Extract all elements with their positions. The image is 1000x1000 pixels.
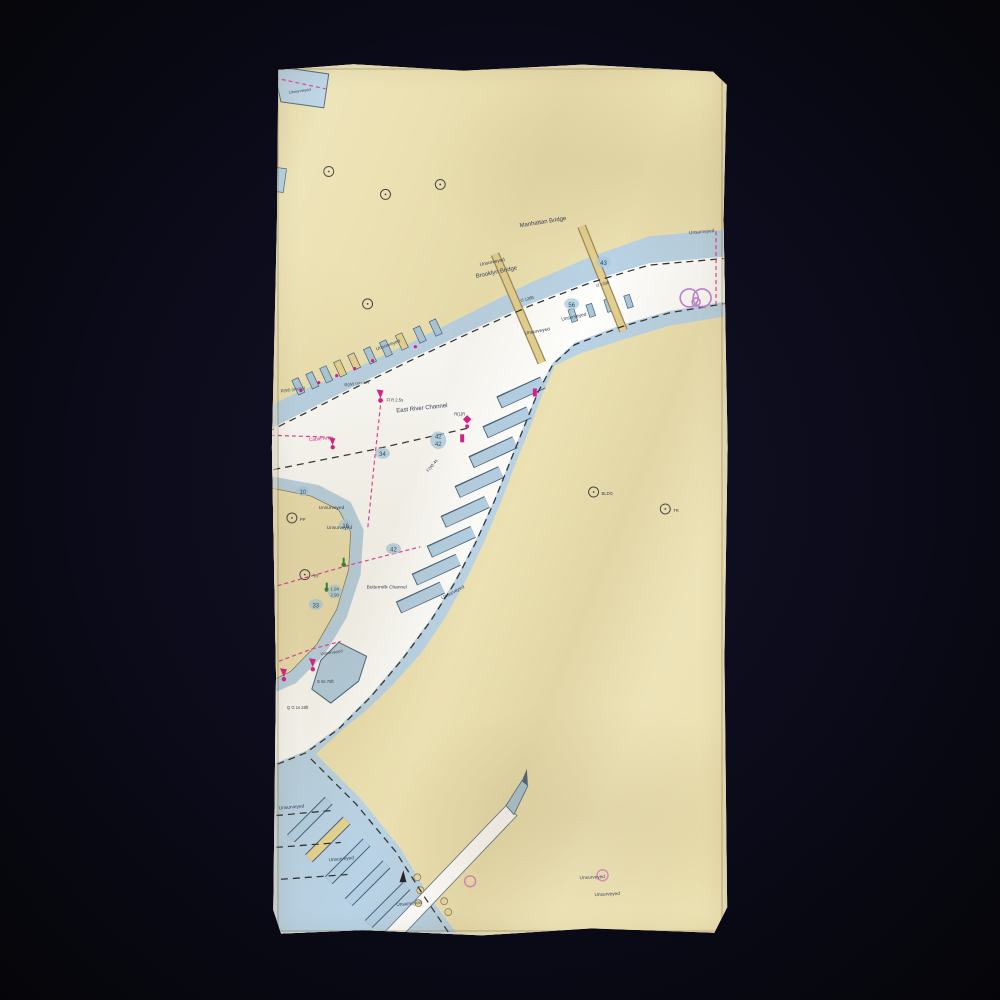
depth-value: 34 bbox=[379, 452, 386, 458]
unsurveyed-label: Unsurveyed bbox=[319, 505, 345, 511]
depth-value: 1.94 bbox=[330, 587, 339, 592]
depth-value: 43 bbox=[600, 261, 607, 267]
building-label: BLDG bbox=[602, 491, 613, 496]
light-label: Fl R 2.5s bbox=[386, 397, 403, 402]
depth-value: 33 bbox=[312, 604, 319, 610]
light-label: G 6s 76ft bbox=[317, 679, 335, 684]
depth-value: 2.90 bbox=[330, 593, 339, 598]
depth-value: 42 bbox=[435, 434, 442, 440]
buttermilk-channel-label: Buttermilk Channel bbox=[367, 585, 407, 591]
corner-chart-fragment: Unsurveyed bbox=[273, 66, 329, 108]
depth-value: 42 bbox=[390, 548, 397, 554]
unsurveyed-label: Unsurveyed bbox=[327, 525, 353, 531]
pile-label: PP bbox=[300, 517, 306, 522]
tower-label: TR bbox=[313, 574, 319, 579]
beach-towel: Unsurveyed bbox=[271, 62, 729, 938]
depth-value: 56 bbox=[568, 303, 575, 309]
nautical-chart-print: Unsurveyed bbox=[271, 62, 729, 938]
light-label: Q G 1s 28ft bbox=[287, 705, 309, 710]
product-photo-scene: Unsurveyed bbox=[0, 0, 1000, 1000]
tower-label: TR bbox=[673, 508, 679, 513]
depth-value: 10 bbox=[300, 490, 307, 496]
light-label: R(1)R bbox=[454, 411, 465, 416]
depth-value: 42 bbox=[435, 442, 442, 448]
